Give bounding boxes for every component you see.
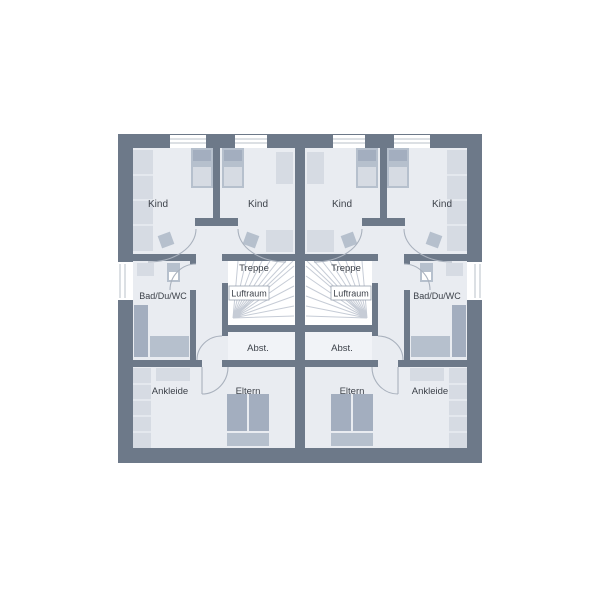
floor-plan-canvas: Kind Kind Kind Kind Bad/Du/WC Bad/Du/WC … xyxy=(0,0,600,600)
dressing-wardrobe-column xyxy=(133,368,151,448)
bath-sink xyxy=(167,263,180,282)
label-treppe-left: Treppe xyxy=(239,263,269,274)
label-kind-2: Kind xyxy=(248,199,268,210)
bed-kind-right xyxy=(222,148,244,188)
floor-plan: Kind Kind Kind Kind Bad/Du/WC Bad/Du/WC … xyxy=(0,0,600,600)
wardrobe-kind-right xyxy=(276,152,293,184)
window-top-1 xyxy=(170,135,206,148)
wall-bottom-band-left xyxy=(133,360,202,367)
label-abst-right: Abst. xyxy=(331,343,353,354)
wall-stair-top xyxy=(222,254,295,261)
bath-cabinet xyxy=(137,263,154,276)
window-side xyxy=(112,262,133,300)
wall-bath-right-lower xyxy=(190,290,196,367)
wall-bath-right-upper xyxy=(190,254,196,264)
bath-shower xyxy=(134,305,148,357)
label-kind-4: Kind xyxy=(432,199,452,210)
label-bad-right: Bad/Du/WC xyxy=(413,291,461,301)
label-luftraum-right: Luftraum xyxy=(333,289,369,299)
wall-stair-bottom xyxy=(222,325,295,332)
label-bad-left: Bad/Du/WC xyxy=(139,291,187,301)
wall-bottom-band-right xyxy=(222,360,295,367)
label-eltern-left: Eltern xyxy=(236,386,261,397)
dressing-shelf xyxy=(156,368,190,381)
label-eltern-right: Eltern xyxy=(340,386,365,397)
party-wall xyxy=(295,134,305,463)
label-kind-3: Kind xyxy=(332,199,352,210)
label-ankleide-left: Ankleide xyxy=(152,386,188,397)
desk-kind-right xyxy=(266,230,293,252)
wall-kind-divider-cap xyxy=(195,218,238,226)
window-top-2 xyxy=(235,135,267,148)
label-ankleide-right: Ankleide xyxy=(412,386,448,397)
label-kind-1: Kind xyxy=(148,199,168,210)
wall-kind-divider xyxy=(213,148,220,219)
label-abst-left: Abst. xyxy=(247,343,269,354)
label-luftraum-left: Luftraum xyxy=(231,289,267,299)
bath-tub xyxy=(150,336,189,357)
label-treppe-right: Treppe xyxy=(331,263,361,274)
bed-kind-left xyxy=(191,148,213,188)
